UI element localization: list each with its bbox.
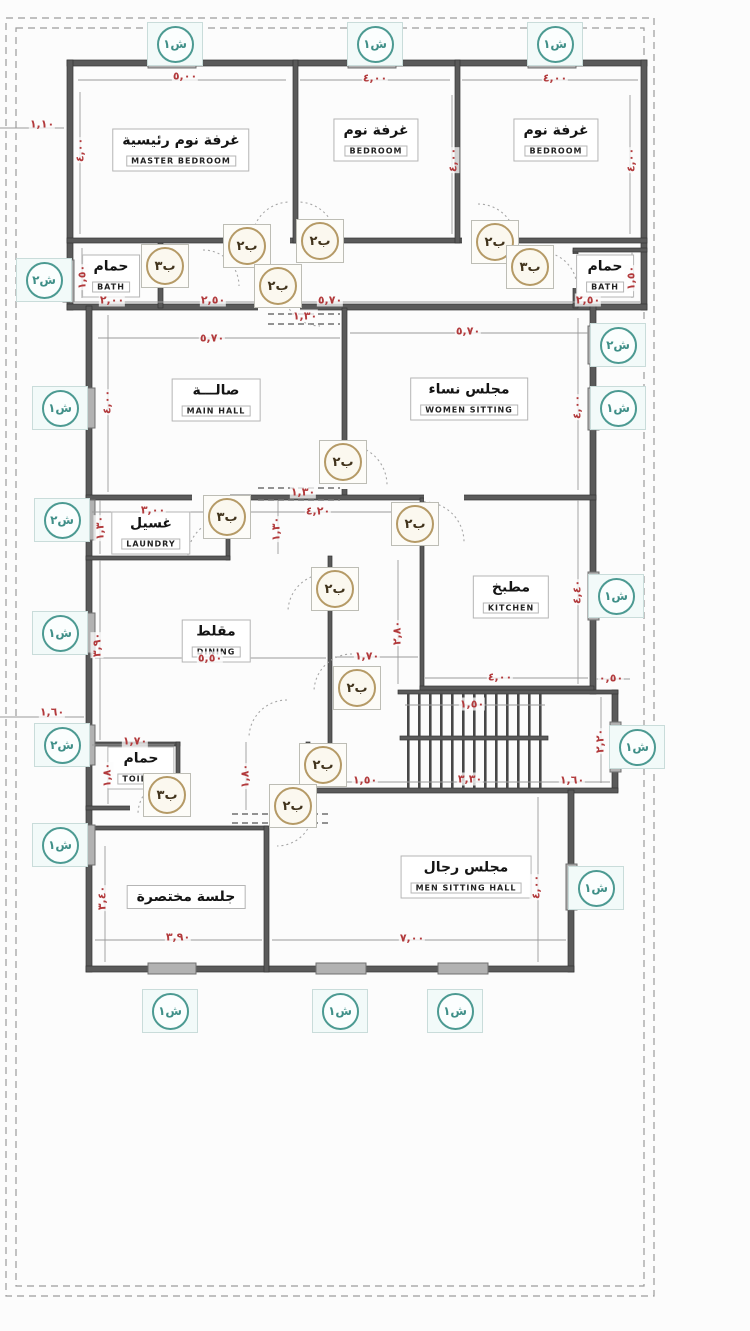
window-tag-label: ش١: [598, 578, 635, 615]
door-tag: ب٢: [299, 743, 347, 787]
window-tag: ش٢: [590, 323, 646, 367]
dimension-label: ٤,٤٠: [571, 579, 584, 605]
dimension-label: ٥,٧٠: [317, 294, 343, 307]
door-tag-label: ب٣: [208, 498, 246, 536]
dimension-label: ١,٥٠: [625, 265, 638, 291]
room-name-english: BEDROOM: [525, 146, 588, 157]
room-name-arabic: غسيل: [121, 516, 180, 532]
window-tag: ش١: [32, 386, 88, 430]
window-tag: ش١: [32, 611, 88, 655]
dimension-label: ٤,٠٠: [74, 137, 87, 163]
dimension-label: ١,٥٠: [76, 264, 89, 290]
window-tag: ش١: [147, 22, 203, 66]
room-name-english: BATH: [586, 282, 624, 293]
room-label: جلسة مختصرة: [127, 885, 246, 909]
room-name-arabic: غرفة نوم: [343, 123, 408, 139]
window-tag: ش٢: [16, 258, 72, 302]
door-tag: ب٣: [141, 244, 189, 288]
dimension-label: ٢,٥٠: [575, 294, 601, 307]
window-tag: ش١: [609, 725, 665, 769]
window-tag-label: ش٢: [44, 502, 81, 539]
dimension-label: ٣,٩٠: [165, 931, 191, 944]
dimension-label: ٤,٠٠: [530, 874, 543, 900]
room-name-arabic: مجلس رجال: [411, 860, 522, 876]
room-label: مجلس نساءWOMEN SITTING: [410, 378, 528, 421]
room-label: صالـــةMAIN HALL: [172, 379, 261, 422]
door-tag-label: ب٢: [259, 267, 297, 305]
window-tag: ش١: [427, 989, 483, 1033]
room-name-english: MASTER BEDROOM: [126, 156, 236, 167]
dimension-label: ١,٨٠: [239, 763, 252, 789]
door-tag: ب٢: [319, 440, 367, 484]
room-name-arabic: حمام: [117, 751, 164, 767]
dimension-label: ١,٥٠: [459, 698, 485, 711]
window-tag-label: ش١: [42, 827, 79, 864]
window-tag: ش١: [32, 823, 88, 867]
room-name-arabic: غرفة نوم رئيسية: [122, 133, 239, 149]
room-label: غسيلLAUNDRY: [111, 512, 190, 555]
room-name-arabic: حمام: [92, 259, 130, 275]
window-tag: ش١: [527, 22, 583, 66]
window-tag: ش٢: [34, 498, 90, 542]
dimension-label: ٣,٤٠: [96, 885, 109, 911]
door-tag-label: ب٣: [148, 776, 186, 814]
room-label: مطبخKITCHEN: [473, 576, 549, 619]
window-tag-label: ش٢: [600, 327, 637, 364]
window-tag-label: ش٢: [26, 262, 63, 299]
dimension-label: ٤,٠٠: [362, 72, 388, 85]
door-tag: ب٢: [254, 264, 302, 308]
dimension-label: ١,٣٠: [290, 486, 316, 499]
dimension-label: ٥,٠٠: [172, 70, 198, 83]
dimension-label: ٤,٠٠: [625, 147, 638, 173]
dimension-label: ١,٨٠: [101, 762, 114, 788]
floor-plan: غرفة نوم رئيسيةMASTER BEDROOMغرفة نومBED…: [0, 0, 750, 1331]
dimension-label: ١,٣٠: [270, 516, 283, 542]
dimension-label: ١,٣٠: [94, 515, 107, 541]
window-tag: ش١: [568, 866, 624, 910]
door-tag: ب٣: [506, 245, 554, 289]
room-name-english: KITCHEN: [483, 603, 539, 614]
room-name-arabic: جلسة مختصرة: [137, 889, 236, 905]
window-tag: ش١: [588, 574, 644, 618]
door-tag: ب٢: [269, 784, 317, 828]
dimension-label: ٣,٠٠: [140, 504, 166, 517]
room-label: غرفة نومBEDROOM: [513, 119, 598, 162]
dimension-label: ٤,٢٠: [305, 505, 331, 518]
door-tag-label: ب٣: [146, 247, 184, 285]
dimension-label: ٤,٠٠: [447, 147, 460, 173]
dimension-label: ١,٥٠: [352, 774, 378, 787]
dimension-label: ٥,٧٠: [199, 332, 225, 345]
room-name-english: LAUNDRY: [121, 539, 180, 550]
dimension-label: ١,٧٠: [354, 650, 380, 663]
window-tag: ش١: [347, 22, 403, 66]
dimension-label: ١,٣٠: [292, 310, 318, 323]
room-name-arabic: غرفة نوم: [523, 123, 588, 139]
dimension-label: ٣,٩٠: [91, 632, 104, 658]
door-tag: ب٣: [203, 495, 251, 539]
dimension-label: ٤,٠٠: [101, 389, 114, 415]
door-tag-label: ب٢: [304, 746, 342, 784]
window-tag-label: ش١: [322, 993, 359, 1030]
window-tag-label: ش١: [357, 26, 394, 63]
door-tag-label: ب٢: [228, 227, 266, 265]
room-name-english: MAIN HALL: [182, 406, 251, 417]
room-label: مجلس رجالMEN SITTING HALL: [401, 856, 532, 899]
window-tag-label: ش١: [152, 993, 189, 1030]
door-tag-label: ب٢: [301, 222, 339, 260]
dimension-label: ٣,٣٠: [457, 773, 483, 786]
dimension-label: ٢,٠٠: [99, 294, 125, 307]
window-tag-label: ش١: [578, 870, 615, 907]
dimension-label: ١,٦٠: [39, 706, 65, 719]
window-tag-label: ش١: [42, 615, 79, 652]
dimension-label: ٥,٧٠: [455, 325, 481, 338]
door-tag: ب٢: [223, 224, 271, 268]
room-label: غرفة نومBEDROOM: [333, 119, 418, 162]
window-tag: ش٢: [34, 723, 90, 767]
dimension-label: ٤,٠٠: [542, 72, 568, 85]
room-name-english: BEDROOM: [345, 146, 408, 157]
dimension-label: ٢,٨٠: [391, 620, 404, 646]
window-tag-label: ش٢: [44, 727, 81, 764]
door-tag-label: ب٢: [316, 570, 354, 608]
door-tag: ب٢: [296, 219, 344, 263]
dimension-label: ٢,٥٠: [200, 294, 226, 307]
dimension-label: ٢,٢٠: [594, 728, 607, 754]
window-tag-label: ش١: [437, 993, 474, 1030]
room-label: حمامBATH: [82, 255, 140, 298]
door-tag: ب٢: [391, 502, 439, 546]
room-name-arabic: مجلس نساء: [420, 382, 518, 398]
door-tag: ب٢: [333, 666, 381, 710]
dimension-label: ٤,٠٠: [487, 671, 513, 684]
door-tag-label: ب٣: [511, 248, 549, 286]
room-label: غرفة نوم رئيسيةMASTER BEDROOM: [112, 129, 249, 172]
dimension-label: ١,٧٠: [122, 735, 148, 748]
window-tag-label: ش١: [157, 26, 194, 63]
dimension-label: ١,١٠: [29, 118, 55, 131]
dimension-label: ٤,٠٠: [571, 394, 584, 420]
door-tag: ب٢: [311, 567, 359, 611]
window-tag-label: ش١: [600, 390, 637, 427]
window-tag: ش١: [312, 989, 368, 1033]
room-name-english: WOMEN SITTING: [420, 405, 518, 416]
room-name-arabic: مقلط: [192, 624, 241, 640]
door-tag-label: ب٢: [324, 443, 362, 481]
window-tag-label: ش١: [537, 26, 574, 63]
door-tag-label: ب٢: [338, 669, 376, 707]
door-tag: ب٣: [143, 773, 191, 817]
window-tag: ش١: [142, 989, 198, 1033]
room-name-arabic: حمام: [586, 259, 624, 275]
door-tag-label: ب٢: [396, 505, 434, 543]
dimension-label: ١,٦٠: [559, 774, 585, 787]
room-name-arabic: صالـــة: [182, 383, 251, 399]
room-name-arabic: مطبخ: [483, 580, 539, 596]
window-tag: ش١: [590, 386, 646, 430]
dimension-label: ٠,٥٠: [598, 672, 624, 685]
dimension-label: ٥,٥٠: [197, 652, 223, 665]
window-tag-label: ش١: [42, 390, 79, 427]
room-name-english: BATH: [92, 282, 130, 293]
dimension-label: ٧,٠٠: [399, 932, 425, 945]
door-tag-label: ب٢: [274, 787, 312, 825]
room-name-english: MEN SITTING HALL: [411, 883, 522, 894]
window-tag-label: ش١: [619, 729, 656, 766]
